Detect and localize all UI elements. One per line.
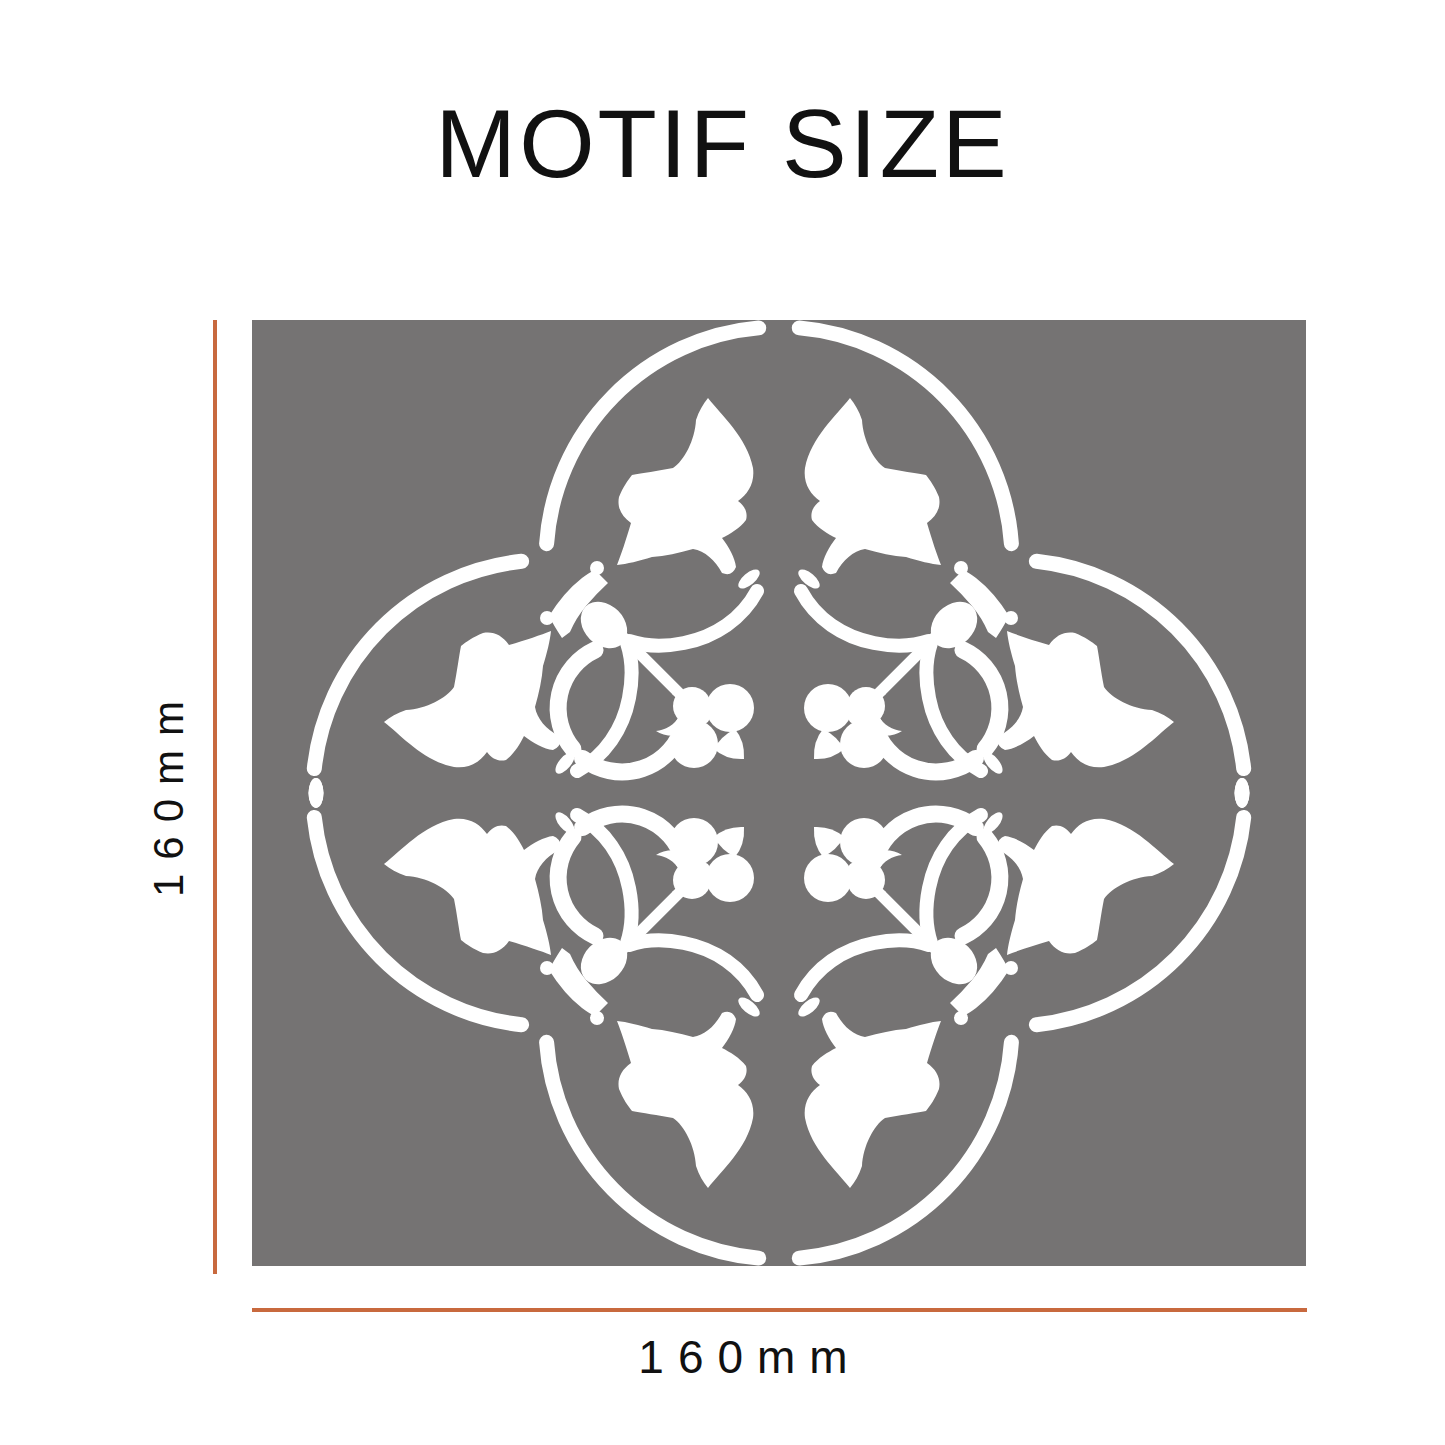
stencil-swatch-background <box>252 320 1306 1266</box>
width-dimension-line <box>252 1308 1307 1312</box>
scroll-bell-lip <box>540 611 554 625</box>
product-dimension-diagram: MOTIF SIZE 160mm 160mm <box>0 0 1445 1445</box>
page-title: MOTIF SIZE <box>0 88 1445 200</box>
motif-stencil-graphic <box>252 320 1306 1266</box>
height-dimension-line <box>213 320 217 1274</box>
height-dimension-label: 160mm <box>145 612 195 972</box>
width-dimension-label: 160mm <box>550 1330 950 1380</box>
scroll-bell-lip <box>590 561 604 575</box>
